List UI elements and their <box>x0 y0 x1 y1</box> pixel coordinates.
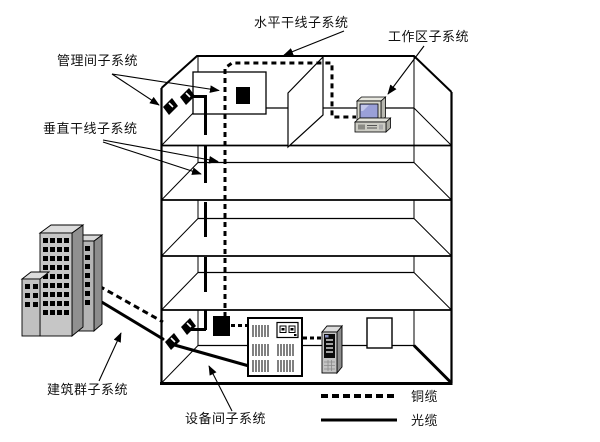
label-equipment-room: 设备间子系统 <box>185 411 266 426</box>
equipment-fiber-cable <box>171 344 249 366</box>
partition-wall <box>288 57 323 147</box>
equipment-rack-icon <box>248 318 302 376</box>
label-building-group: 建筑群子系统 <box>47 382 128 397</box>
campus-copper-cable <box>99 286 163 322</box>
callout-arrow-management-1 <box>112 74 159 105</box>
label-vertical-backbone: 垂直干线子系统 <box>43 121 138 136</box>
cabling-system-diagram: 水平干线子系统 工作区子系统 管理间子系统 垂直干线子系统 建筑群子系统 设备间… <box>0 0 600 442</box>
distribution-box-icon <box>236 87 250 104</box>
legend-samples <box>321 396 397 420</box>
label-management-room: 管理间子系统 <box>57 53 138 68</box>
callout-arrow-vertical-2 <box>103 142 201 174</box>
callout-arrow-equipment <box>209 366 232 411</box>
legend-label-copper: 铜缆 <box>411 389 438 404</box>
pc-workstation-icon <box>355 97 391 132</box>
wall-connector-icon <box>163 98 178 115</box>
wall-connector-icon <box>181 318 196 335</box>
server-tower-icon <box>322 326 342 373</box>
legend-label-fiber: 光缆 <box>411 413 438 428</box>
campus-buildings-icon <box>22 225 102 336</box>
callout-arrow-workarea <box>388 46 424 94</box>
doorway <box>367 318 392 348</box>
management-room <box>193 72 266 114</box>
label-work-area: 工作区子系统 <box>388 29 469 44</box>
callout-arrow-horizontal <box>284 31 344 55</box>
distribution-box-icon <box>213 316 230 336</box>
callout-arrow-campus <box>99 333 121 381</box>
label-horizontal-backbone: 水平干线子系统 <box>254 15 349 30</box>
main-building-cutaway <box>160 56 453 384</box>
